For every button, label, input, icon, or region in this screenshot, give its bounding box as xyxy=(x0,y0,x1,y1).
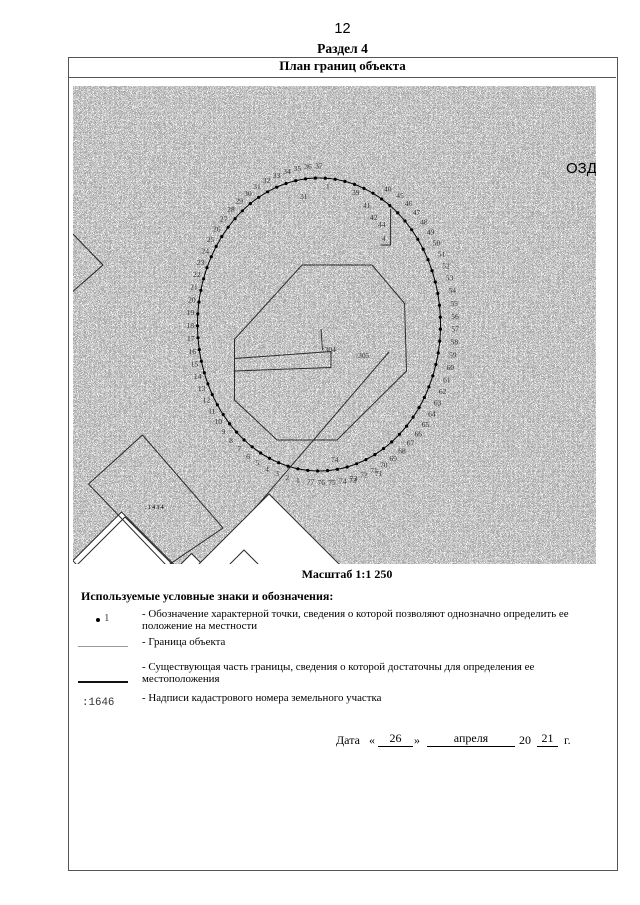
svg-text:7: 7 xyxy=(237,445,241,454)
svg-text:72: 72 xyxy=(360,470,368,479)
svg-text:18: 18 xyxy=(187,321,195,330)
svg-text:53: 53 xyxy=(446,274,454,283)
svg-text:1: 1 xyxy=(326,182,330,191)
svg-text:32: 32 xyxy=(263,176,271,185)
svg-text:17: 17 xyxy=(187,334,195,343)
svg-text:1: 1 xyxy=(296,476,300,485)
svg-text:40: 40 xyxy=(384,185,392,194)
svg-text:61: 61 xyxy=(443,375,451,384)
svg-text:47: 47 xyxy=(413,208,421,217)
svg-text:46: 46 xyxy=(405,199,413,208)
svg-text::1434: :1434 xyxy=(145,504,165,511)
svg-text:2: 2 xyxy=(285,473,289,482)
svg-text:52: 52 xyxy=(442,262,450,271)
svg-text:60: 60 xyxy=(447,363,455,372)
svg-text:4: 4 xyxy=(265,465,269,474)
svg-text:62: 62 xyxy=(439,387,447,396)
svg-text:67: 67 xyxy=(407,439,415,448)
svg-text:20: 20 xyxy=(188,295,196,304)
svg-text:9: 9 xyxy=(222,427,226,436)
svg-text:50: 50 xyxy=(433,238,441,247)
svg-text:75: 75 xyxy=(328,478,336,487)
svg-text:5: 5 xyxy=(255,459,259,468)
svg-text:29: 29 xyxy=(236,197,244,206)
svg-text::304: :304 xyxy=(323,345,337,354)
svg-text:14: 14 xyxy=(194,372,202,381)
svg-text:48: 48 xyxy=(420,217,428,226)
svg-text:12: 12 xyxy=(203,396,211,405)
svg-text:69: 69 xyxy=(389,454,397,463)
svg-text:26: 26 xyxy=(213,225,221,234)
svg-text:6: 6 xyxy=(246,452,250,461)
svg-text:21: 21 xyxy=(190,283,198,292)
svg-text:65: 65 xyxy=(422,420,430,429)
svg-text:41: 41 xyxy=(363,201,371,210)
svg-text:71: 71 xyxy=(375,469,383,478)
svg-text:35: 35 xyxy=(294,164,302,173)
svg-text:22: 22 xyxy=(193,270,201,279)
svg-text:31: 31 xyxy=(300,192,308,201)
svg-text::305: :305 xyxy=(356,351,370,360)
svg-text:74: 74 xyxy=(331,455,339,464)
svg-text:24: 24 xyxy=(202,246,210,255)
svg-text:36: 36 xyxy=(304,162,312,171)
svg-text:ОЗД: ОЗД xyxy=(566,160,596,177)
svg-text:13: 13 xyxy=(198,384,206,393)
svg-text:33: 33 xyxy=(273,171,281,180)
svg-text:19: 19 xyxy=(187,308,195,317)
svg-text:31: 31 xyxy=(253,182,261,191)
svg-text:44: 44 xyxy=(378,220,386,229)
svg-text:8: 8 xyxy=(229,436,233,445)
svg-text:64: 64 xyxy=(428,410,436,419)
svg-text:49: 49 xyxy=(427,228,435,237)
svg-text:68: 68 xyxy=(398,447,406,456)
svg-text:34: 34 xyxy=(283,167,291,176)
svg-text:66: 66 xyxy=(415,430,423,439)
svg-text:3: 3 xyxy=(275,469,279,478)
svg-text:54: 54 xyxy=(449,286,457,295)
svg-text:10: 10 xyxy=(215,417,223,426)
svg-text:30: 30 xyxy=(244,189,252,198)
svg-text:23: 23 xyxy=(197,258,205,267)
svg-text:73: 73 xyxy=(349,476,357,485)
svg-text:59: 59 xyxy=(449,350,457,359)
svg-text:56: 56 xyxy=(451,312,459,321)
svg-text:51: 51 xyxy=(438,250,446,259)
svg-text:4: 4 xyxy=(382,234,386,243)
svg-text:57: 57 xyxy=(451,325,459,334)
svg-text:77: 77 xyxy=(307,478,315,487)
svg-text:39: 39 xyxy=(352,188,360,197)
svg-text:76: 76 xyxy=(318,478,326,487)
svg-text:63: 63 xyxy=(434,399,442,408)
svg-text:42: 42 xyxy=(370,213,378,222)
svg-text:15: 15 xyxy=(191,360,199,369)
svg-text:28: 28 xyxy=(227,205,235,214)
svg-text:25: 25 xyxy=(207,235,215,244)
svg-text:16: 16 xyxy=(189,347,197,356)
svg-text:55: 55 xyxy=(450,299,458,308)
svg-text:45: 45 xyxy=(396,191,404,200)
svg-text:37: 37 xyxy=(315,161,323,170)
svg-text:11: 11 xyxy=(208,407,215,416)
svg-text:74: 74 xyxy=(339,476,347,485)
svg-text:27: 27 xyxy=(220,215,228,224)
svg-text:58: 58 xyxy=(451,338,459,347)
